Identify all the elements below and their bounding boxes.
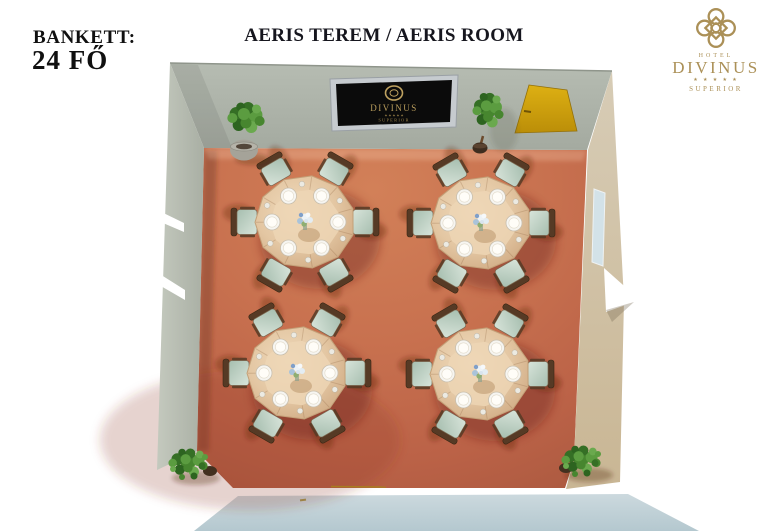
- door-handle: [524, 111, 531, 112]
- cup: [442, 393, 448, 399]
- divinus-knot-icon: [693, 5, 739, 51]
- cup: [513, 199, 519, 205]
- cup: [329, 349, 335, 355]
- brand-name: DIVINUS: [664, 59, 768, 76]
- capacity-value: 24 FŐ: [32, 45, 108, 76]
- wall-screen: DIVINUS ★ ★ ★ ★ ★ SUPERIOR: [330, 75, 458, 131]
- cup: [337, 198, 343, 204]
- screen-brand-text: DIVINUS: [370, 103, 418, 113]
- page-title: AERIS TEREM / AERIS ROOM: [244, 25, 524, 47]
- cup: [256, 354, 262, 360]
- right-wall-window: [592, 189, 605, 266]
- cup: [516, 237, 522, 243]
- cup: [332, 387, 338, 393]
- cup: [480, 409, 486, 415]
- cup: [481, 258, 487, 264]
- brand-tier: SUPERIOR: [664, 85, 768, 93]
- cup: [291, 332, 297, 338]
- cup: [475, 182, 481, 188]
- brand-stars: ★ ★ ★ ★ ★: [664, 77, 768, 83]
- cup: [297, 408, 303, 414]
- screen-tier-text: SUPERIOR: [378, 118, 409, 123]
- hotel-logo: HOTEL DIVINUS ★ ★ ★ ★ ★ SUPERIOR: [664, 5, 768, 93]
- banquet-floorplan-page: DIVINUS ★ ★ ★ ★ ★ SUPERIOR BANKETT: 24 F…: [0, 0, 768, 531]
- cup: [440, 204, 446, 210]
- cup: [474, 333, 480, 339]
- cup: [443, 242, 449, 248]
- cup: [439, 355, 445, 361]
- floor-edge-gold-line: [331, 487, 386, 488]
- cup: [259, 392, 265, 398]
- cup: [515, 388, 521, 394]
- room-3d-view: DIVINUS ★ ★ ★ ★ ★ SUPERIOR: [0, 0, 768, 531]
- cup: [340, 236, 346, 242]
- cup: [305, 257, 311, 263]
- cup: [267, 241, 273, 247]
- cup: [264, 203, 270, 209]
- cup: [512, 350, 518, 356]
- cup: [299, 181, 305, 187]
